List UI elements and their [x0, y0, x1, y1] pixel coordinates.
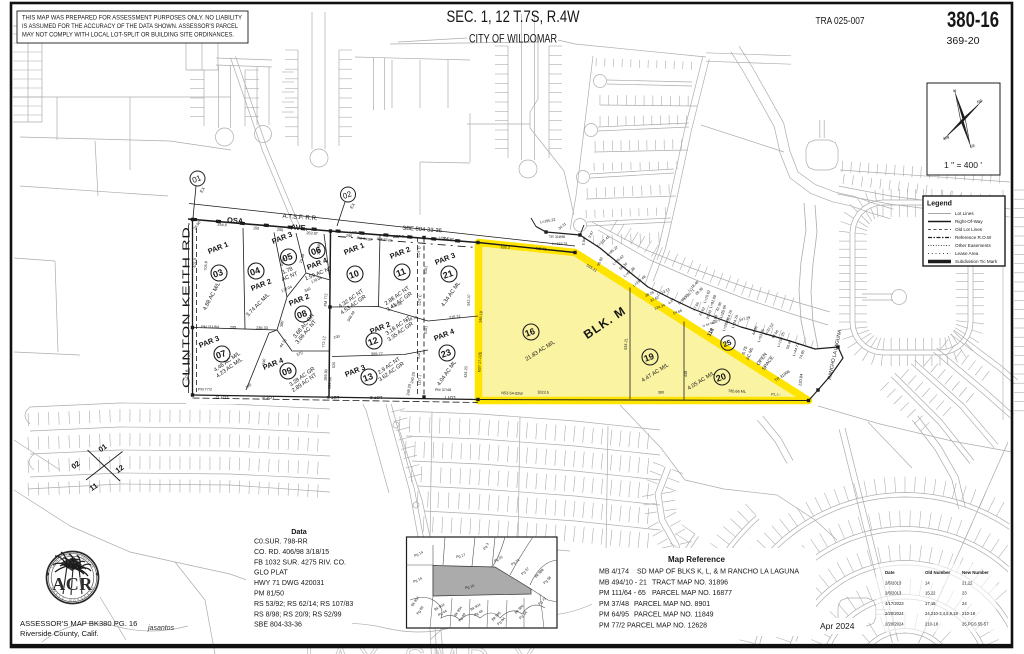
svg-text:24: 24	[962, 601, 967, 606]
svg-text:Lease Area: Lease Area	[955, 251, 979, 256]
svg-text:2/20/2024: 2/20/2024	[885, 611, 904, 616]
svg-text:PARCEL MAP NO. 12628: PARCEL MAP NO. 12628	[627, 623, 707, 630]
svg-text:24,210-3,4,5,8,18: 24,210-3,4,5,8,18	[925, 611, 959, 616]
svg-text:390.95: 390.95	[187, 353, 192, 365]
svg-text:RS 53/92; RS 62/14; RS 107/83: RS 53/92; RS 62/14; RS 107/83	[254, 601, 353, 608]
svg-text:210-18: 210-18	[925, 621, 939, 626]
svg-text:23: 23	[962, 591, 967, 596]
svg-text:449: 449	[684, 371, 688, 378]
svg-text:SD MAP OF BLKS K, L, & M RANC: SD MAP OF BLKS K, L, & M RANCHO LA LAGUN…	[637, 569, 799, 576]
svg-text:CO. RD. 406/98 3/18/15: CO. RD. 406/98 3/18/15	[254, 549, 329, 556]
svg-text:LOT E: LOT E	[370, 395, 383, 400]
svg-text:17,18: 17,18	[925, 601, 936, 606]
svg-text:THIS MAP WAS PREPARED FOR ASSE: THIS MAP WAS PREPARED FOR ASSESSMENT PUR…	[22, 15, 242, 22]
svg-text:2/6/2013: 2/6/2013	[885, 581, 902, 586]
svg-text:Map Reference: Map Reference	[668, 555, 725, 564]
svg-text:200: 200	[277, 228, 284, 232]
svg-text:HWY 71 DWG 420031: HWY 71 DWG 420031	[254, 580, 324, 587]
svg-text:PM 37/48: PM 37/48	[435, 388, 451, 392]
svg-text:LOT B: LOT B	[185, 369, 190, 381]
svg-text:PM 77/2: PM 77/2	[599, 623, 625, 630]
svg-text:Lot Lines: Lot Lines	[955, 211, 974, 216]
svg-text:TR 31896: TR 31896	[549, 235, 565, 239]
svg-text:9101: 9101	[417, 351, 422, 360]
svg-text:Right-Of-Way: Right-Of-Way	[955, 219, 983, 224]
svg-text:Date: Date	[885, 570, 895, 575]
svg-text:PM 37/48: PM 37/48	[599, 601, 629, 608]
svg-text:RS 8/98; RS 20/9; RS 52/99: RS 8/98; RS 20/9; RS 52/99	[254, 611, 342, 618]
svg-text:PM 111/64: PM 111/64	[201, 325, 219, 329]
svg-text:PM 77/2: PM 77/2	[198, 388, 212, 392]
svg-text:299.99: 299.99	[328, 377, 333, 389]
svg-text:269.90: 269.90	[324, 369, 329, 381]
svg-text:New Number: New Number	[962, 570, 989, 575]
svg-text:401.8: 401.8	[193, 258, 197, 268]
svg-text:LOT E: LOT E	[327, 395, 340, 400]
svg-text:15,22: 15,22	[925, 591, 936, 596]
svg-text:2/6/2013: 2/6/2013	[885, 591, 902, 596]
svg-text:520: 520	[332, 362, 336, 369]
svg-text:1 " = 400 ': 1 " = 400 '	[944, 160, 982, 170]
svg-text:705.8: 705.8	[204, 261, 208, 271]
svg-text:772.12: 772.12	[322, 336, 327, 348]
svg-text:Apr 2024: Apr 2024	[820, 621, 855, 631]
svg-text:LOT C: LOT C	[438, 236, 450, 241]
svg-text:192.3: 192.3	[500, 245, 510, 250]
svg-text:246.18: 246.18	[479, 311, 484, 323]
svg-text:9101: 9101	[424, 266, 429, 275]
svg-text:SBE 804-33-36: SBE 804-33-36	[254, 622, 302, 629]
svg-text:LOT D: LOT D	[216, 395, 229, 400]
svg-text:Subdivision Tic Mark: Subdivision Tic Mark	[955, 259, 998, 264]
svg-text:ACR: ACR	[52, 574, 93, 594]
svg-text:Data: Data	[291, 527, 308, 536]
svg-text:C0.SUR. 798-RR: C0.SUR. 798-RR	[254, 539, 308, 546]
svg-text:Legend: Legend	[927, 201, 952, 208]
svg-text:254.6: 254.6	[217, 223, 227, 228]
svg-text:N53-54-02W: N53-54-02W	[501, 391, 523, 396]
svg-text:PM 111/64 - 65: PM 111/64 - 65	[599, 590, 646, 597]
svg-text:LOT B: LOT B	[394, 235, 405, 239]
svg-text:380-16: 380-16	[947, 7, 999, 32]
svg-text:Old Lot Lines: Old Lot Lines	[955, 227, 983, 232]
svg-text:PM 64/95: PM 64/95	[599, 612, 629, 619]
svg-text:Old Number: Old Number	[925, 570, 950, 575]
svg-text:L=163.31: L=163.31	[552, 242, 567, 246]
svg-text:ASSESSOR'S MAP BK380 PG. 16: ASSESSOR'S MAP BK380 PG. 16	[20, 619, 137, 628]
svg-text:MB 494/10 - 21: MB 494/10 - 21	[599, 579, 647, 586]
svg-text:AVE.: AVE.	[290, 222, 308, 232]
svg-text:PM 81/50: PM 81/50	[254, 591, 284, 598]
svg-text:25,PGS.55-57: 25,PGS.55-57	[962, 621, 989, 626]
svg-text:PM 772: PM 772	[324, 293, 329, 306]
svg-text:434.20: 434.20	[464, 366, 469, 378]
svg-text:785.66 ML: 785.66 ML	[728, 389, 746, 394]
svg-text:298.98: 298.98	[317, 243, 322, 255]
svg-text:369-20: 369-20	[947, 35, 980, 47]
svg-text:14: 14	[925, 581, 930, 586]
svg-text:LOT I: LOT I	[445, 395, 456, 400]
svg-text:TRACT MAP NO. 31896: TRACT MAP NO. 31896	[652, 579, 728, 586]
svg-text:OSA: OSA	[227, 215, 244, 225]
svg-text:MB 4/174: MB 4/174	[599, 569, 629, 576]
svg-text:210-18: 210-18	[962, 611, 976, 616]
svg-text:236.33: 236.33	[256, 326, 268, 330]
svg-text:Reference R.O.W: Reference R.O.W	[955, 235, 992, 240]
svg-text:Riverside County, Calif.: Riverside County, Calif.	[20, 629, 99, 638]
svg-text:GLO PLAT: GLO PLAT	[254, 570, 288, 577]
svg-text:2/20/2024: 2/20/2024	[885, 621, 904, 626]
svg-text:542.07: 542.07	[467, 294, 472, 306]
svg-text:LOT E: LOT E	[262, 395, 275, 400]
svg-text:253.07: 253.07	[306, 231, 318, 236]
svg-text:PARCEL MAP NO. 16877: PARCEL MAP NO. 16877	[652, 590, 732, 597]
svg-text:150: 150	[253, 226, 260, 230]
svg-text:LOT A: LOT A	[350, 231, 361, 235]
svg-text:IS ASSUMED FOR THE ACCURACY OF: IS ASSUMED FOR THE ACCURACY OF THE DATA …	[22, 23, 239, 30]
svg-text:SEC. 1, 12 T.7S, R.4W: SEC. 1, 12 T.7S, R.4W	[447, 8, 580, 26]
svg-text:PARCEL MAP NO. 8901: PARCEL MAP NO. 8901	[634, 601, 710, 608]
svg-text:TRA 025-007: TRA 025-007	[816, 15, 865, 27]
svg-text:9101: 9101	[424, 326, 429, 335]
svg-text:Other Easements: Other Easements	[955, 243, 991, 248]
svg-text:CITY OF WILDOMAR: CITY OF WILDOMAR	[469, 34, 557, 46]
svg-text:MAY NOT COMPLY WITH LOCAL LOT-: MAY NOT COMPLY WITH LOCAL LOT-SPLIT OR B…	[22, 32, 234, 39]
svg-text:4/17/2023: 4/17/2023	[885, 601, 904, 606]
svg-text:595.77: 595.77	[371, 352, 383, 356]
svg-text:1023.5: 1023.5	[537, 390, 549, 394]
svg-text:P.L.I.-: P.L.I.-	[771, 393, 781, 397]
svg-text:360: 360	[658, 391, 664, 395]
svg-text:FB 1032 SUR. 4275 RIV. CO.: FB 1032 SUR. 4275 RIV. CO.	[254, 559, 346, 566]
svg-text:21,22: 21,22	[962, 581, 973, 586]
svg-text:jasantos: jasantos	[147, 625, 175, 632]
svg-text:295: 295	[230, 326, 236, 330]
svg-text:634.21: 634.21	[624, 338, 629, 350]
svg-text:PARCEL MAP NO. 11849: PARCEL MAP NO. 11849	[634, 612, 714, 619]
